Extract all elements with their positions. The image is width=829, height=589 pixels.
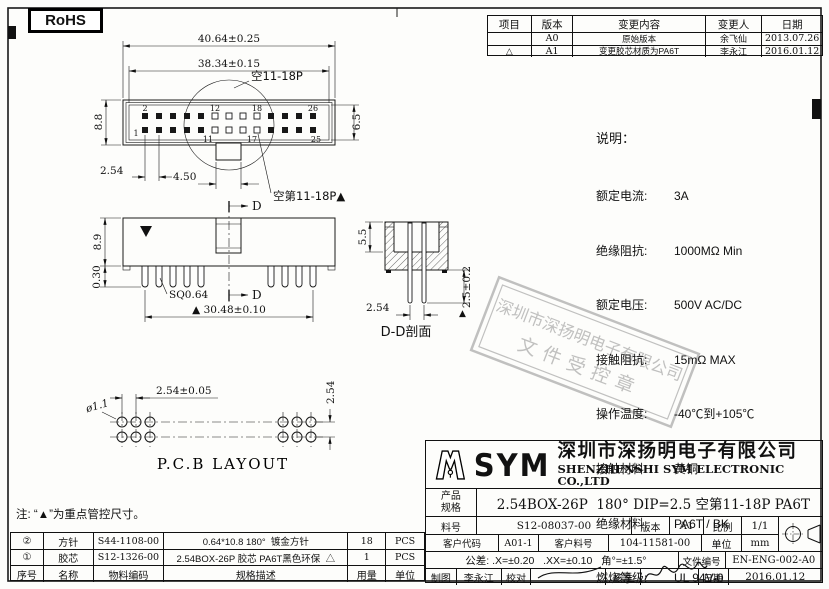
doc-number-label: 文件编号 — [678, 552, 725, 569]
signature-row: 制图 李永江 校对 核准 日期 2016.01.12 — [426, 568, 822, 585]
pin — [282, 266, 288, 287]
part-label: 料号 — [426, 517, 476, 535]
spec-title: 说明： — [596, 130, 826, 148]
pin-pad — [310, 127, 316, 133]
customer-part-value: 104-11581-00 — [608, 534, 701, 551]
company-name-cn: 深圳市深扬明电子有限公司 — [558, 442, 829, 461]
foot — [328, 266, 335, 270]
front-view: D D 8.9 0.30 SQ0.64 ▲ 30. — [91, 199, 335, 322]
spec-line: 额定电流:3A — [596, 187, 826, 205]
projection-symbol-cell — [778, 516, 824, 551]
drawn-value: 李永江 — [456, 569, 501, 585]
bom-qty: 18 — [347, 533, 385, 549]
rev-version: A1 — [531, 45, 573, 58]
rev-person: 余飞仙 — [705, 32, 762, 45]
pin — [198, 266, 204, 287]
hatched-floor — [394, 252, 439, 270]
pin — [184, 266, 190, 287]
dim-body-height: 8.9 — [92, 234, 104, 251]
pin-pad — [296, 113, 302, 119]
product-spec-value: 2.54BOX-26P 180° DIP=2.5 空第11-18P PA6T — [476, 489, 822, 517]
dim-pin-span: ▲ 30.48±0.10 — [192, 304, 266, 316]
scale-value: 1/1 — [741, 517, 778, 535]
spec-line: 额定电压:500V AC/DC — [596, 296, 826, 314]
pin-pad — [310, 113, 316, 119]
pcb-layout: 2.54±0.05 ø1.1 2.54 P.C.B LAYOUT — [84, 380, 337, 473]
bom-desc: 0.64*10.8 180° 镀金方针 — [163, 533, 347, 549]
rev-date: 2013.07.26 — [761, 32, 822, 45]
pin-number: 12 — [210, 104, 220, 113]
company-row: SYM 深圳市深扬明电子有限公司 SHENZHENSHI SYM ELECTRO… — [426, 441, 829, 488]
bom-col-qty: 用量 — [347, 565, 385, 582]
pin-pad-empty — [226, 113, 232, 119]
col-content: 变更内容 — [572, 16, 704, 32]
pin-pad — [170, 127, 176, 133]
bom-col-unit: 单位 — [385, 565, 424, 582]
polarity-mark — [140, 226, 152, 237]
checked-signature-cell — [530, 569, 605, 585]
bom-desc: 2.54BOX-26P 胶芯 PA6T黑色环保 △ — [163, 549, 347, 565]
pin-pad — [184, 127, 190, 133]
date-label: 日期 — [698, 569, 728, 585]
foot — [442, 270, 447, 273]
bom-name: 方针 — [43, 533, 93, 549]
rev-content: 原始版本 — [572, 32, 704, 45]
dim-opening: 6.5 — [351, 114, 363, 131]
pin-pad-empty — [240, 127, 246, 133]
pin — [268, 266, 274, 287]
pin — [310, 266, 316, 287]
customer-part-label: 客户料号 — [538, 534, 608, 551]
bom-col-desc: 规格描述 — [163, 565, 347, 582]
product-label-2: 规格 — [441, 503, 461, 515]
drawn-label: 制图 — [426, 569, 456, 585]
tolerance-value: 公差: .X=±0.20 .XX=±0.10 角°=±1.5° — [426, 552, 678, 569]
pin — [296, 266, 302, 287]
spec-line: 绝缘阻抗:1000MΩ Min — [596, 242, 826, 260]
bom-name: 胶芯 — [43, 549, 93, 565]
customer-code-label: 客户代码 — [426, 534, 498, 551]
pin-pad — [268, 127, 274, 133]
body-wall — [126, 103, 332, 143]
foot — [386, 270, 391, 273]
part-number: S12-08037-00 — [476, 517, 631, 535]
rev-date: 2016.01.12 — [761, 45, 822, 58]
sym-logo-text: SYM — [474, 446, 551, 483]
pin-pad — [198, 113, 204, 119]
dim-hole-pitch: 2.54±0.05 — [156, 385, 212, 397]
dim-overall-width: 40.64±0.25 — [198, 33, 260, 45]
dim-body-height: 8.8 — [93, 114, 105, 131]
rev-version: A0 — [531, 32, 573, 45]
col-date: 日期 — [761, 16, 822, 32]
product-label-1: 产品 — [441, 491, 461, 503]
version-value: A1 — [669, 517, 703, 535]
first-angle-projection-icon — [780, 518, 824, 550]
pin — [422, 223, 426, 303]
pin-pad-empty — [212, 127, 218, 133]
pin-pad — [156, 113, 162, 119]
control-dimension-note: 注: “▲”为重点管控尺寸。 — [16, 506, 145, 522]
pin — [170, 266, 176, 287]
dim-pin-pitch: 2.54 — [366, 302, 390, 314]
dim-hole-diameter: ø1.1 — [84, 397, 110, 415]
scale-label: 比例 — [703, 517, 741, 535]
pin — [408, 223, 412, 303]
col-item: 项目 — [488, 16, 531, 32]
top-view: 2 1 12 18 26 11 17 25 40.64±0.25 38.34±0… — [93, 33, 363, 203]
bom-no: ① — [11, 549, 43, 565]
pin-pad — [142, 113, 148, 119]
revision-row: △ A1 变更胶芯材质为PA6T 李永江 2016.01.12 — [488, 45, 822, 58]
rev-content: 变更胶芯材质为PA6T — [572, 45, 704, 58]
spec-line: 操作温度:-40℃到+105℃ — [596, 405, 826, 423]
pin-number: 26 — [308, 104, 318, 113]
dim-key-width: 4.50 — [173, 171, 196, 183]
pin — [142, 266, 148, 287]
pcb-layout-title: P.C.B LAYOUT — [157, 455, 289, 473]
unit-label: 单位 — [701, 534, 741, 551]
bom-no: ② — [11, 533, 43, 549]
edge-mark-left — [8, 26, 16, 39]
bom-code: S12-1326-00 — [93, 549, 164, 565]
bom-header-row: 序号 名称 物料编码 规格描述 用量 单位 — [11, 565, 424, 582]
title-block: SYM 深圳市深扬明电子有限公司 SHENZHENSHI SYM ELECTRO… — [425, 440, 823, 583]
rohs-badge: RoHS — [28, 8, 103, 33]
pin-pad — [296, 127, 302, 133]
spec-value: 3A — [674, 187, 689, 205]
body-outline — [123, 100, 335, 145]
section-arrow-label-top: D — [252, 199, 262, 213]
spec-value: 500V AC/DC — [674, 296, 742, 314]
date-value: 2016.01.12 — [728, 569, 823, 585]
bom-row: ① 胶芯 S12-1326-00 2.54BOX-26P 胶芯 PA6T黑色环保… — [11, 549, 424, 565]
spec-label: 额定电压: — [596, 296, 674, 314]
pin-pad-empty — [212, 113, 218, 119]
rev-item — [488, 32, 531, 45]
body-cavity — [129, 105, 329, 140]
pin-pad-empty — [226, 127, 232, 133]
hatched-wall — [439, 222, 448, 270]
unit-value: mm — [741, 534, 778, 551]
spec-label: 接触阻抗: — [596, 351, 674, 369]
bom-qty: 1 — [347, 549, 385, 565]
pin-pad — [198, 127, 204, 133]
key-notch — [216, 143, 241, 160]
approved-label: 核准 — [605, 569, 640, 585]
bom-col-code: 物料编码 — [93, 565, 164, 582]
pin-pad — [142, 127, 148, 133]
spec-value: 15mΩ MAX — [674, 351, 736, 369]
hatched-wall — [385, 222, 394, 270]
bom-table: ② 方针 S44-1108-00 0.64*10.8 180° 镀金方针 18 … — [10, 532, 425, 581]
product-row: 产品 规格 2.54BOX-26P 180° DIP=2.5 空第11-18P … — [426, 488, 822, 517]
bom-unit: PCS — [385, 533, 424, 549]
pin-pad — [282, 127, 288, 133]
dim-pitch: 2.54 — [100, 165, 124, 177]
pin-number: 17 — [247, 135, 257, 144]
key-dim-mark: ▲ — [459, 309, 466, 319]
dim-standoff: 0.30 — [91, 265, 103, 288]
engineering-drawing-sheet: 2 1 12 18 26 11 17 25 40.64±0.25 38.34±0… — [0, 0, 829, 589]
rev-item: △ — [488, 45, 531, 58]
pin-pad-empty — [254, 113, 260, 119]
pin-number: 11 — [203, 135, 213, 144]
spec-line: 接触阻抗:15mΩ MAX — [596, 351, 826, 369]
doc-number-value: EN-ENG-002-A0 — [725, 552, 823, 569]
dim-row-pitch: 2.54 — [325, 380, 337, 404]
revision-table: 项目 版本 变更内容 变更人 日期 A0 原始版本 余飞仙 2013.07.26… — [487, 15, 823, 56]
rev-person: 李永江 — [705, 45, 762, 58]
checked-label: 校对 — [501, 569, 531, 585]
label-pin-square: SQ0.64 — [169, 289, 208, 301]
customer-row: 客户代码 A01-1 客户料号 104-11581-00 单位 mm — [426, 534, 822, 551]
revision-header-row: 项目 版本 变更内容 变更人 日期 — [488, 16, 822, 32]
spec-value: -40℃到+105℃ — [674, 405, 754, 423]
section-arrow-label-bottom: D — [252, 288, 262, 302]
pin-pad-empty — [254, 127, 260, 133]
pin-number: 1 — [133, 129, 138, 138]
spec-label: 绝缘阻抗: — [596, 242, 674, 260]
label-empty-pins-bottom: 空第11-18P▲ — [273, 189, 345, 203]
section-view: 5.5 2.54 2.5±0.2 ▲ D-D剖面 — [357, 222, 473, 340]
pin-pad — [156, 127, 162, 133]
dim-pin-tail: 2.5±0.2 — [461, 266, 473, 308]
revision-row: A0 原始版本 余飞仙 2013.07.26 — [488, 32, 822, 45]
section-title: D-D剖面 — [381, 325, 432, 340]
pin-pad — [170, 113, 176, 119]
part-row: 料号 S12-08037-00 版本 A1 比例 1/1 — [426, 516, 822, 535]
spec-value: 1000MΩ Min — [674, 242, 742, 260]
spec-label: 额定电流: — [596, 187, 674, 205]
tolerance-row: 公差: .X=±0.20 .XX=±0.10 角°=±1.5° 文件编号 EN-… — [426, 551, 822, 569]
bom-col-name: 名称 — [43, 565, 93, 582]
bom-col-no: 序号 — [11, 565, 43, 582]
version-label: 版本 — [631, 517, 669, 535]
spec-label: 操作温度: — [596, 405, 674, 423]
company-name-en: SHENZHENSHI SYM ELECTRONIC CO.,LTD — [558, 463, 829, 487]
foot — [123, 266, 130, 270]
sym-logo-icon — [434, 446, 467, 484]
dim-cavity-depth: 5.5 — [357, 229, 369, 246]
pin-pad-empty — [240, 113, 246, 119]
pin — [156, 266, 162, 287]
bom-row: ② 方针 S44-1108-00 0.64*10.8 180° 镀金方针 18 … — [11, 533, 424, 549]
label-empty-pins-top: 空11-18P — [251, 69, 303, 83]
bom-code: S44-1108-00 — [93, 533, 164, 549]
approved-signature-cell — [640, 569, 698, 585]
pin-number: 18 — [252, 104, 262, 113]
col-version: 版本 — [531, 16, 573, 32]
pin-pad — [282, 113, 288, 119]
pin-number: 2 — [142, 104, 147, 113]
bom-unit: PCS — [385, 549, 424, 565]
col-person: 变更人 — [705, 16, 762, 32]
customer-code-value: A01-1 — [498, 534, 538, 551]
pin-number: 25 — [311, 135, 321, 144]
